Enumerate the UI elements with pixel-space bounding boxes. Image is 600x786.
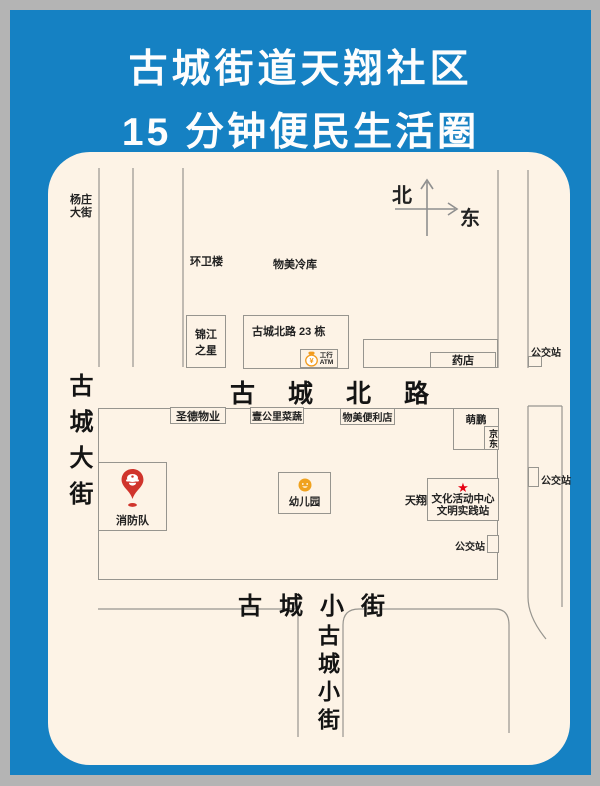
street-label-gucheng-dajie: 古城大街 [61,373,96,517]
youeryuan-label: 幼儿园 [289,494,321,509]
building-wenhua-center: ★ 文化活动中心 文明实践站 [427,478,499,521]
kindergarten-icon [298,478,312,492]
label-wumei-lengku: 物美冷库 [273,259,317,272]
bus-stop-mid-label: 公交站 [455,538,485,553]
street-label-gucheng-beilu: 古城北路 [230,374,462,410]
poster-title-line2: 15 分钟便民生活圈 [10,101,591,157]
wenhua-center-line2: 文明实践站 [437,505,490,517]
jingdong-label: 京东 [487,429,500,449]
bus-stop-top-box [528,356,542,367]
fire-station-pin-icon [120,468,145,508]
wumei-bianlidian-label: 物美便利店 [343,409,393,424]
building-wumei-bianlidian: 物美便利店 [340,408,395,425]
building-shengde-wuye: 圣德物业 [170,407,226,424]
building-yaodian: 药店 [430,352,496,368]
icbc-atm-box: ¥ 工行 ATM [300,349,338,368]
bus-stop-right-label: 公交站 [541,472,571,487]
building-xiaofangdui: 消防队 [98,462,167,531]
tianxiang-label: 天翔 [405,495,427,508]
building-mengpeng: 萌鹏 京东 [453,408,499,450]
mengpeng-label: 萌鹏 [454,412,498,427]
street-label-yangzhuang-line1: 杨庄 [70,194,92,207]
poster-title-line1: 古城街道天翔社区 [10,38,591,94]
street-label-yangzhuang: 杨庄 大街 [70,194,92,220]
bus-stop-mid-box [487,535,499,553]
red-star-icon: ★ [457,482,469,493]
bus-stop-right-box [528,467,539,487]
money-bag-icon: ¥ [305,350,318,367]
shengde-wuye-label: 圣德物业 [176,408,220,424]
xiaofangdui-label: 消防队 [99,512,166,528]
street-label-yangzhuang-line2: 大街 [70,207,92,220]
street-label-gucheng-xiaojie-horizontal: 古城小街 [238,586,402,621]
beilu-23-label: 古城北路 23 栋 [252,323,348,339]
jinjiang-line1: 锦江 [195,326,217,342]
building-jinjiang-zhixing: 锦江 之星 [186,315,226,368]
atm-label-line2: ATM [320,359,334,366]
yaodian-label: 药店 [452,352,474,368]
poster-background: 古城街道天翔社区 15 分钟便民生活圈 [10,10,591,775]
building-yigongli-caishu: 壹公里菜蔬 [250,407,304,424]
map-panel: 北 东 杨庄 大街 古城大街 古城北路 古城小街 古城小街 环卫楼 物美冷库 锦… [48,152,570,765]
building-jingdong: 京东 [484,426,499,450]
compass-north-label: 北 [392,179,412,208]
atm-label-line1: 工行 [320,352,334,359]
jinjiang-line2: 之星 [195,342,217,358]
street-label-gucheng-xiaojie-vertical: 古城小街 [311,624,343,736]
yigongli-caishu-label: 壹公里菜蔬 [252,408,302,423]
wenhua-center-line1: 文化活动中心 [432,493,495,505]
label-huanweilou: 环卫楼 [190,256,223,269]
compass-east-label: 东 [460,202,480,231]
building-youeryuan: 幼儿园 [278,472,331,514]
